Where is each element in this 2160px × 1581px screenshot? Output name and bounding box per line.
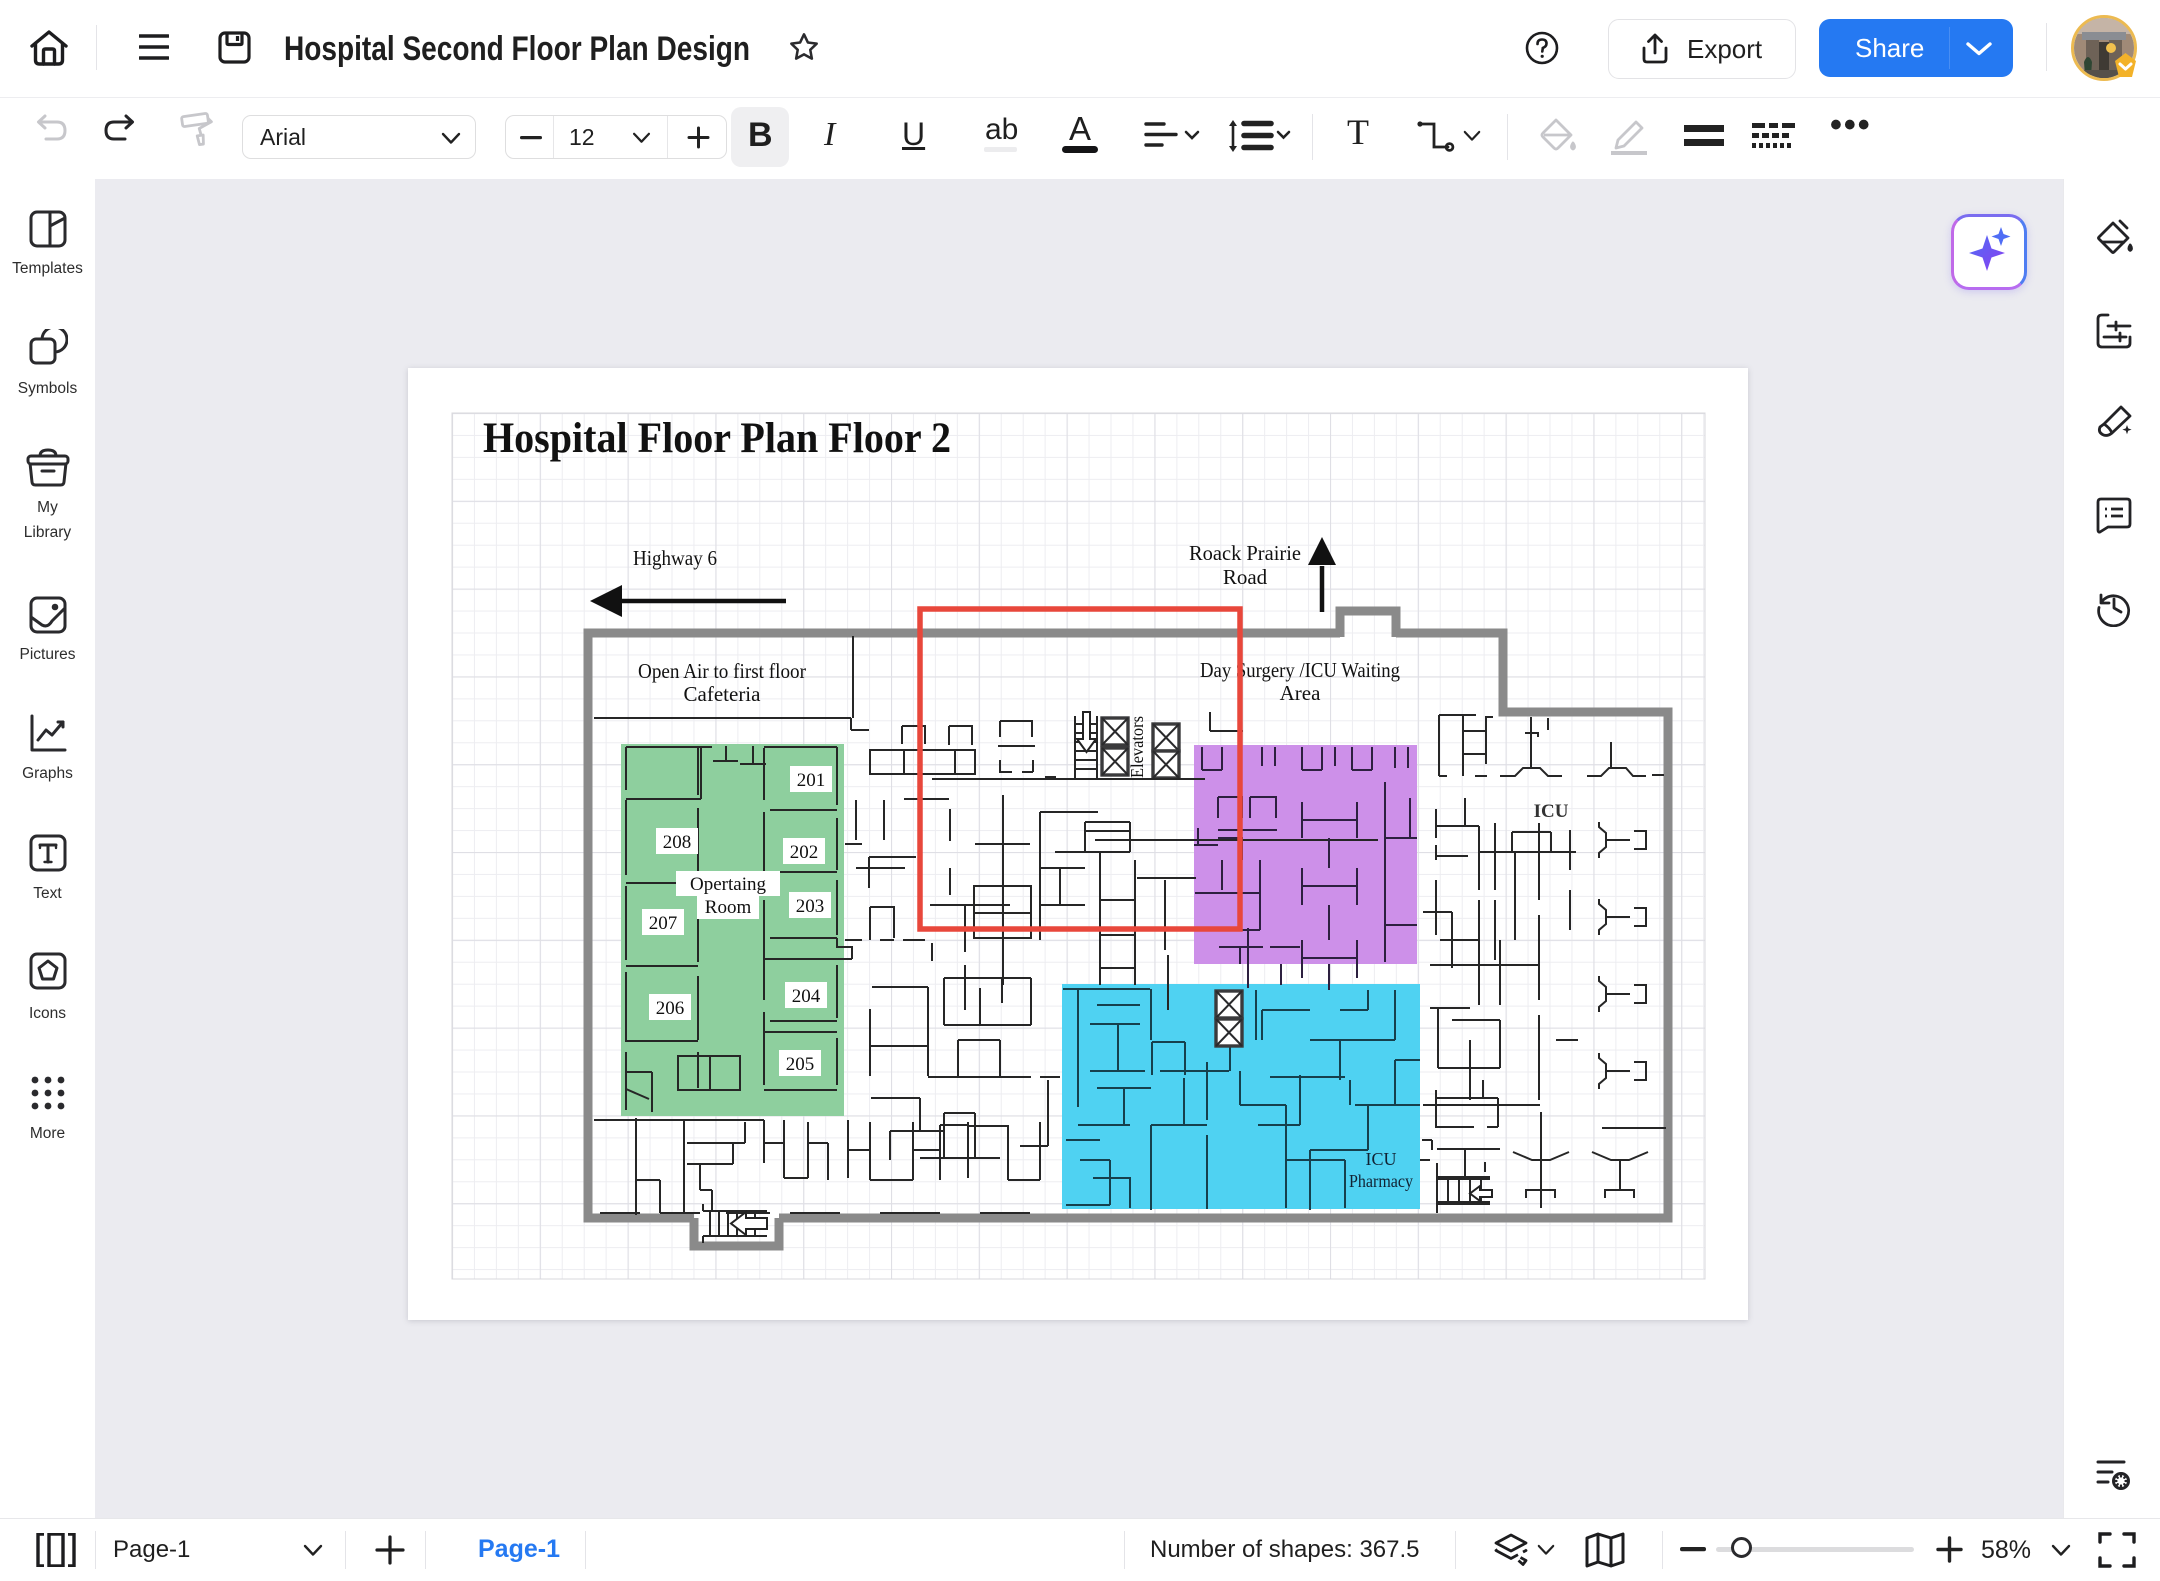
svg-text:207: 207 bbox=[649, 913, 678, 934]
svg-text:202: 202 bbox=[790, 842, 819, 863]
svg-text:ICU: ICU bbox=[1534, 801, 1569, 822]
svg-text:Room: Room bbox=[705, 897, 752, 918]
svg-text:Highway 6: Highway 6 bbox=[633, 546, 717, 570]
svg-text:Area: Area bbox=[1280, 681, 1321, 705]
svg-text:206: 206 bbox=[656, 998, 685, 1019]
svg-text:ICU: ICU bbox=[1366, 1149, 1397, 1169]
svg-text:208: 208 bbox=[663, 832, 692, 853]
svg-text:Roack Prairie: Roack Prairie bbox=[1189, 541, 1301, 565]
svg-text:203: 203 bbox=[796, 896, 825, 917]
svg-text:205: 205 bbox=[786, 1054, 815, 1075]
svg-text:Hospital Floor Plan Floor 2: Hospital Floor Plan Floor 2 bbox=[483, 415, 951, 462]
svg-text:Elevators: Elevators bbox=[1127, 716, 1147, 778]
svg-text:Cafeteria: Cafeteria bbox=[684, 682, 762, 706]
svg-text:Open Air to first floor: Open Air to first floor bbox=[638, 659, 806, 683]
svg-text:Opertaing: Opertaing bbox=[690, 874, 766, 895]
svg-text:Pharmacy: Pharmacy bbox=[1349, 1171, 1413, 1191]
svg-text:201: 201 bbox=[797, 770, 826, 791]
svg-text:Day Surgery /ICU Waiting: Day Surgery /ICU Waiting bbox=[1200, 658, 1400, 682]
svg-text:Road: Road bbox=[1223, 565, 1268, 589]
svg-text:204: 204 bbox=[792, 986, 821, 1007]
